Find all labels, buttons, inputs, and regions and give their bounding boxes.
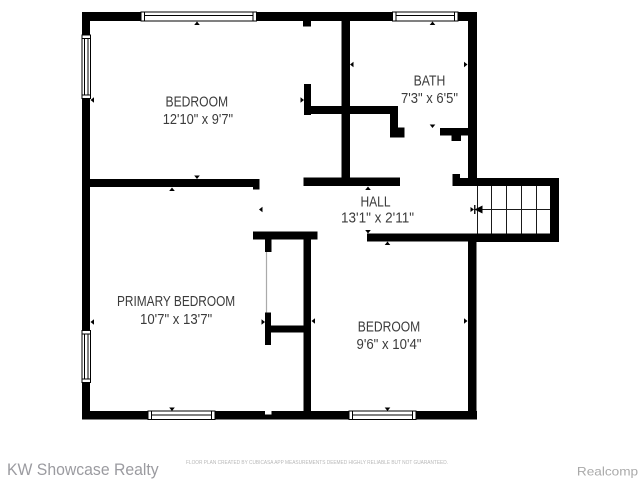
svg-text:13'1" x 2'11": 13'1" x 2'11" [341,211,414,227]
svg-text:Realcomp: Realcomp [577,464,638,478]
svg-text:7'3" x 6'5": 7'3" x 6'5" [401,91,458,107]
svg-text:10'7" x 13'7": 10'7" x 13'7" [140,312,212,328]
svg-text:BATH: BATH [414,74,446,90]
svg-text:BEDROOM: BEDROOM [358,320,420,336]
svg-text:12'10" x 9'7": 12'10" x 9'7" [163,112,233,128]
svg-text:HALL: HALL [360,195,390,211]
svg-text:PRIMARY BEDROOM: PRIMARY BEDROOM [117,294,235,310]
svg-text:FLOOR PLAN CREATED BY CUBICASA: FLOOR PLAN CREATED BY CUBICASA APP MEASU… [186,460,448,466]
svg-text:9'6" x 10'4": 9'6" x 10'4" [357,337,422,353]
svg-text:KW Showcase Realty: KW Showcase Realty [7,460,159,479]
svg-text:BEDROOM: BEDROOM [166,95,229,111]
